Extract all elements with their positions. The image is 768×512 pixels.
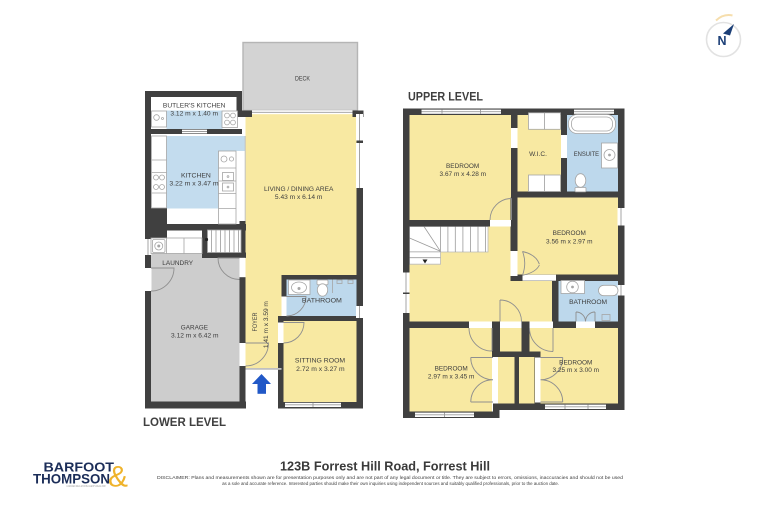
- svg-text:123B Forrest Hill Road, Forres: 123B Forrest Hill Road, Forrest Hill: [280, 458, 490, 473]
- svg-text:UPPER LEVEL: UPPER LEVEL: [408, 90, 483, 104]
- svg-text:as a sole and accurate referen: as a sole and accurate reference. Intere…: [222, 481, 559, 486]
- svg-text:BATHROOM: BATHROOM: [569, 299, 607, 306]
- svg-text:DECK: DECK: [295, 76, 311, 83]
- svg-text:DISCLAIMER: Plans and measurem: DISCLAIMER: Plans and measurements shown…: [157, 475, 624, 480]
- svg-text:LICENSED REAL ESTATE AGENTS RE: LICENSED REAL ESTATE AGENTS REAA 2008: [67, 484, 106, 488]
- svg-text:BEDROOM: BEDROOM: [559, 359, 592, 366]
- svg-text:3.56 m x 2.97 m: 3.56 m x 2.97 m: [546, 239, 593, 245]
- svg-text:BATHROOM: BATHROOM: [302, 298, 342, 305]
- svg-text:3.12 m x 1.40 m: 3.12 m x 1.40 m: [170, 111, 218, 117]
- svg-text:THOMPSON: THOMPSON: [33, 470, 110, 486]
- svg-text:ENSUITE: ENSUITE: [574, 151, 599, 158]
- svg-text:2.97 m x 3.45 m: 2.97 m x 3.45 m: [428, 375, 475, 381]
- svg-text:FOYER: FOYER: [252, 312, 259, 331]
- svg-text:BUTLER'S KITCHEN: BUTLER'S KITCHEN: [163, 102, 226, 109]
- svg-text:KITCHEN: KITCHEN: [181, 173, 211, 180]
- svg-text:3.12 m x 6.42 m: 3.12 m x 6.42 m: [171, 333, 219, 339]
- svg-text:LAUNDRY: LAUNDRY: [162, 260, 194, 267]
- svg-text:3.25 m x 3.00 m: 3.25 m x 3.00 m: [553, 368, 600, 374]
- svg-text:3.67 m x 4.28 m: 3.67 m x 4.28 m: [440, 172, 487, 178]
- svg-text:5.43 m x 6.14 m: 5.43 m x 6.14 m: [275, 195, 323, 201]
- svg-text:LIVING / DINING AREA: LIVING / DINING AREA: [264, 186, 334, 193]
- svg-text:BEDROOM: BEDROOM: [553, 230, 586, 237]
- svg-text:&: &: [108, 461, 128, 494]
- svg-text:SITTING ROOM: SITTING ROOM: [295, 358, 345, 365]
- svg-text:GARAGE: GARAGE: [181, 325, 208, 332]
- svg-text:2.72 m x 3.27 m: 2.72 m x 3.27 m: [296, 367, 344, 373]
- svg-text:N: N: [717, 34, 726, 48]
- svg-text:1.41 m x 3.59 m: 1.41 m x 3.59 m: [264, 301, 270, 348]
- svg-text:BEDROOM: BEDROOM: [446, 163, 479, 170]
- svg-text:BEDROOM: BEDROOM: [435, 365, 468, 372]
- svg-text:W.I.C.: W.I.C.: [529, 151, 547, 158]
- svg-text:3.22 m x 3.47 m: 3.22 m x 3.47 m: [169, 182, 218, 188]
- svg-text:LOWER LEVEL: LOWER LEVEL: [143, 415, 226, 429]
